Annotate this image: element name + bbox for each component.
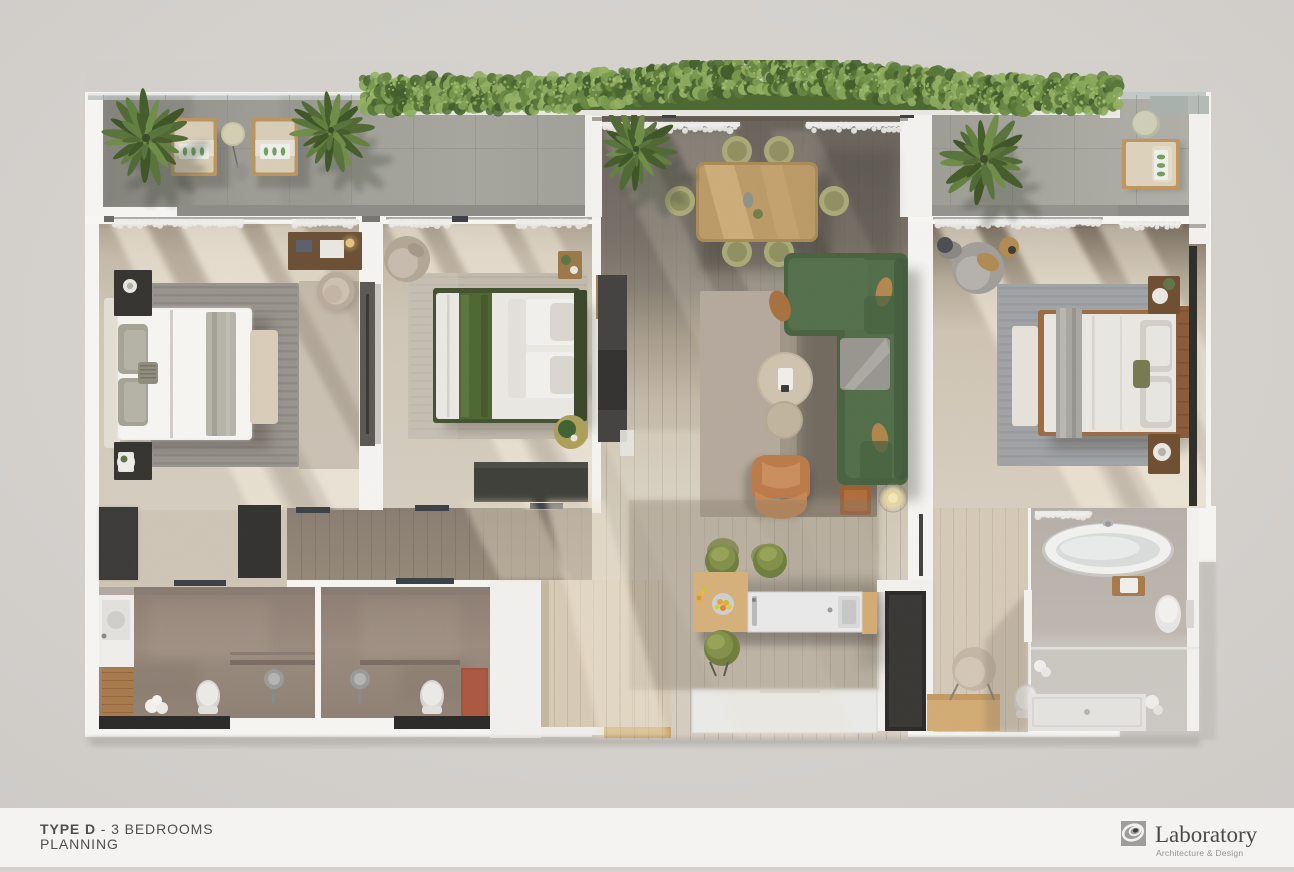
svg-text:Laboratory: Laboratory (1155, 822, 1258, 847)
svg-text:Architecture & Design: Architecture & Design (1156, 848, 1243, 858)
svg-text:PLANNING: PLANNING (40, 836, 119, 852)
svg-text:TYPE D - 3 BEDROOMS: TYPE D - 3 BEDROOMS (40, 821, 213, 837)
